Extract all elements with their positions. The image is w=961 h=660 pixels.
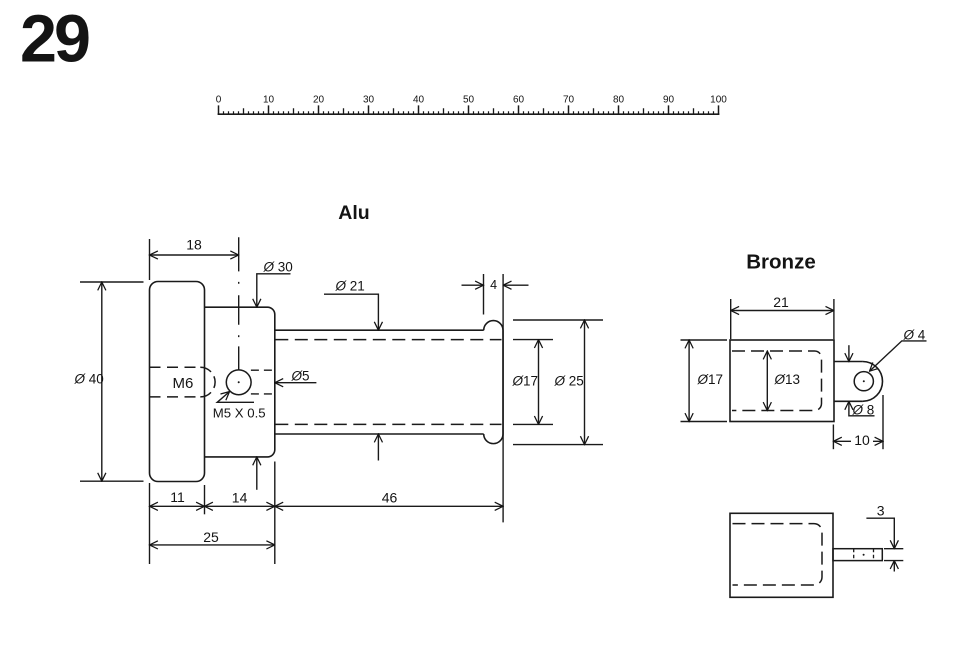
svg-text:Bronze: Bronze — [746, 250, 815, 273]
svg-text:M5 X 0.5: M5 X 0.5 — [213, 405, 266, 420]
svg-text:3: 3 — [877, 502, 885, 518]
svg-text:11: 11 — [170, 489, 185, 505]
svg-text:Ø13: Ø13 — [774, 372, 801, 387]
svg-text:10: 10 — [854, 432, 870, 448]
svg-text:70: 70 — [563, 94, 575, 105]
svg-text:21: 21 — [773, 294, 789, 310]
svg-text:30: 30 — [363, 94, 375, 105]
svg-text:46: 46 — [382, 490, 398, 506]
svg-text:Ø 25: Ø 25 — [554, 374, 584, 389]
svg-text:10: 10 — [263, 94, 275, 105]
svg-text:14: 14 — [232, 490, 248, 506]
svg-text:100: 100 — [710, 94, 727, 105]
svg-text:M6: M6 — [173, 375, 194, 392]
svg-text:0: 0 — [216, 94, 222, 105]
svg-text:40: 40 — [413, 94, 425, 105]
svg-text:Ø5: Ø5 — [291, 369, 310, 384]
svg-text:60: 60 — [513, 94, 525, 105]
svg-text:50: 50 — [463, 94, 475, 105]
svg-text:18: 18 — [186, 236, 202, 252]
svg-text:80: 80 — [613, 94, 625, 105]
svg-text:Ø 8: Ø 8 — [852, 402, 875, 417]
svg-text:29: 29 — [20, 3, 89, 77]
svg-text:Alu: Alu — [338, 202, 369, 224]
svg-text:25: 25 — [203, 529, 219, 545]
svg-text:Ø 30: Ø 30 — [263, 260, 293, 275]
svg-text:90: 90 — [663, 94, 675, 105]
svg-text:4: 4 — [490, 278, 497, 292]
svg-text:Ø17: Ø17 — [697, 372, 724, 387]
svg-text:Ø 21: Ø 21 — [335, 279, 365, 294]
svg-text:Ø 40: Ø 40 — [74, 372, 104, 387]
svg-text:20: 20 — [313, 94, 325, 105]
svg-text:Ø17: Ø17 — [512, 374, 539, 389]
